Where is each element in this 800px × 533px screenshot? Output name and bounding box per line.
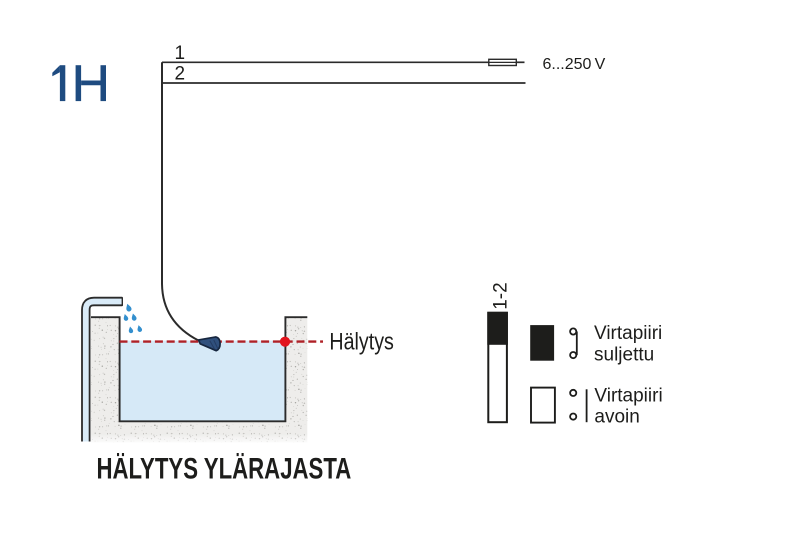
svg-text:Virtapiiri: Virtapiiri (594, 323, 662, 344)
svg-text:HÄLYTYS YLÄRAJASTA: HÄLYTYS YLÄRAJASTA (97, 451, 352, 485)
svg-text:avoin: avoin (594, 407, 639, 428)
svg-text:6...250 V: 6...250 V (543, 56, 606, 73)
svg-text:1: 1 (175, 43, 186, 64)
svg-text:1-2: 1-2 (491, 282, 512, 309)
svg-text:Virtapiiri: Virtapiiri (594, 386, 662, 407)
svg-text:Hälytys: Hälytys (329, 327, 394, 354)
svg-text:suljettu: suljettu (594, 344, 654, 365)
svg-text:2: 2 (175, 64, 186, 85)
